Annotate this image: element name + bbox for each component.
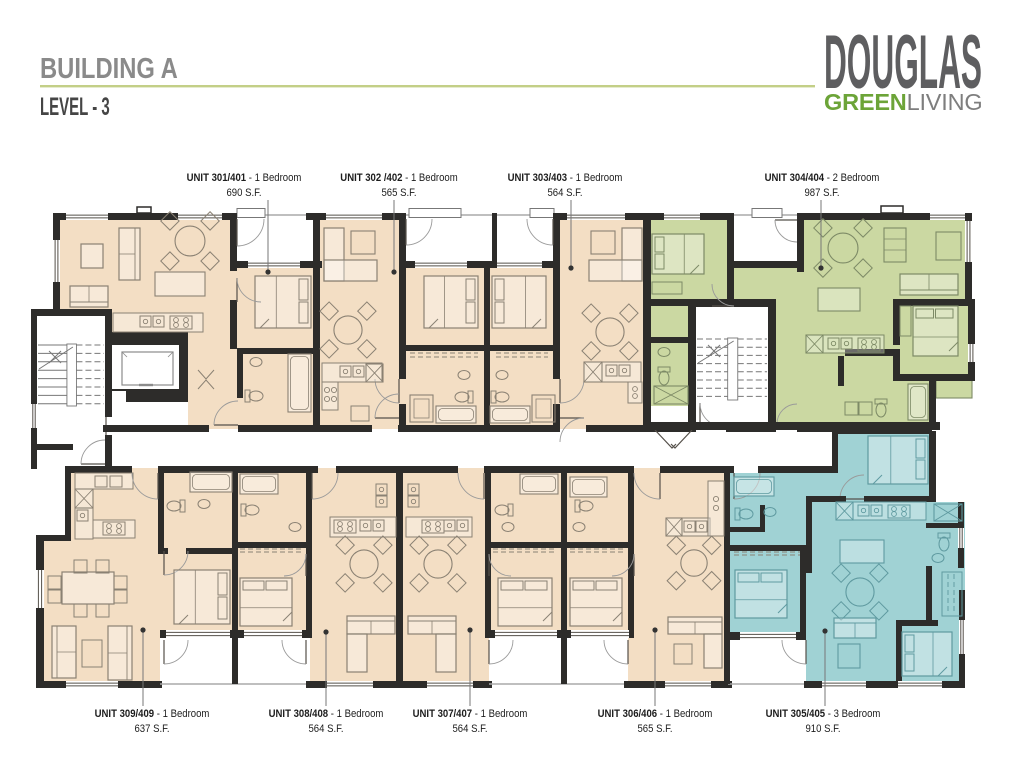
svg-text:LEVEL - 3: LEVEL - 3: [40, 93, 110, 121]
svg-text:564 S.F.: 564 S.F.: [308, 723, 343, 735]
svg-text:987 S.F.: 987 S.F.: [804, 187, 839, 199]
svg-text:UNIT 305/405 - 3 Bedroom: UNIT 305/405 - 3 Bedroom: [766, 708, 881, 720]
svg-text:UNIT 301/401 - 1 Bedroom: UNIT 301/401 - 1 Bedroom: [187, 172, 302, 184]
svg-text:UNIT 306/406 - 1 Bedroom: UNIT 306/406 - 1 Bedroom: [598, 708, 713, 720]
svg-text:637 S.F.: 637 S.F.: [134, 723, 169, 735]
svg-text:UNIT 308/408 - 1 Bedroom: UNIT 308/408 - 1 Bedroom: [269, 708, 384, 720]
svg-text:564 S.F.: 564 S.F.: [452, 723, 487, 735]
svg-text:565 S.F.: 565 S.F.: [381, 187, 416, 199]
svg-text:GREENLIVING: GREENLIVING: [824, 89, 982, 115]
svg-text:565 S.F.: 565 S.F.: [637, 723, 672, 735]
svg-text:UNIT 302 /402 - 1 Bedroom: UNIT 302 /402 - 1 Bedroom: [340, 172, 457, 184]
svg-text:910 S.F.: 910 S.F.: [805, 723, 840, 735]
svg-text:UNIT 303/403 - 1 Bedroom: UNIT 303/403 - 1 Bedroom: [508, 172, 623, 184]
svg-text:564 S.F.: 564 S.F.: [547, 187, 582, 199]
svg-text:UNIT 309/409 - 1 Bedroom: UNIT 309/409 - 1 Bedroom: [95, 708, 210, 720]
svg-text:UNIT 304/404 - 2 Bedroom: UNIT 304/404 - 2 Bedroom: [765, 172, 880, 184]
svg-text:690 S.F.: 690 S.F.: [226, 187, 261, 199]
svg-text:BUILDING A: BUILDING A: [40, 52, 178, 85]
svg-text:UNIT 307/407 - 1 Bedroom: UNIT 307/407 - 1 Bedroom: [413, 708, 528, 720]
